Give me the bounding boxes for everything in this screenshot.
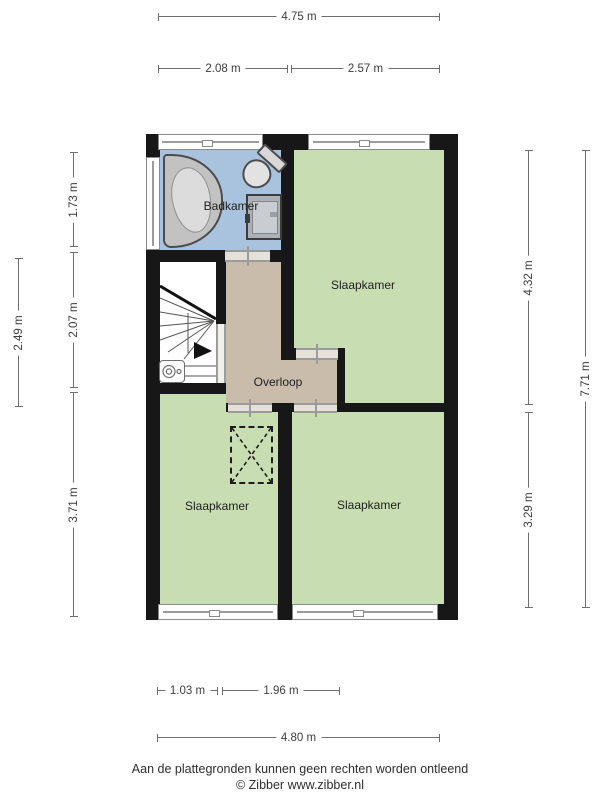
dashed-cross-marker: [230, 426, 273, 484]
dimension-top-right: 2.57 m: [291, 68, 440, 69]
room-label-bedroom-bottom-left: Slaapkamer: [185, 499, 249, 513]
dimension-label: 7.71 m: [580, 356, 592, 401]
dimension-top-total: 4.75 m: [158, 16, 440, 17]
dimension-right-top: 4.32 m: [528, 150, 529, 405]
dimension-left-mid: 2.07 m: [73, 252, 74, 388]
dimension-label: 2.49 m: [13, 310, 25, 355]
stairs-down-arrow: [194, 342, 212, 359]
dimension-left-top: 1.73 m: [73, 152, 74, 247]
dimension-label: 2.57 m: [343, 63, 388, 75]
dimension-right-bottom: 3.29 m: [528, 412, 529, 608]
room-label-bedroom-top: Slaapkamer: [331, 278, 395, 292]
dimension-label: 4.80 m: [276, 732, 321, 744]
shower-handle: [270, 212, 277, 217]
door-bedroom-top: [296, 348, 338, 360]
room-bedroom-top: [294, 150, 444, 348]
room-label-bathroom: Badkamer: [204, 199, 259, 213]
dimension-bottom-left: 1.03 m: [157, 690, 218, 691]
shower-knob: [245, 214, 250, 223]
room-label-landing: Overloop: [254, 375, 303, 389]
dimension-label: 3.29 m: [523, 487, 535, 532]
window-top-bathroom: [158, 134, 263, 150]
opening-stairs: [216, 324, 226, 383]
door-bedroom-bottom-left: [228, 403, 272, 413]
dimension-label: 1.73 m: [68, 177, 80, 222]
dimension-label: 1.96 m: [258, 685, 303, 697]
window-bottom-right-bedroom: [292, 604, 438, 620]
dimension-label: 3.71 m: [68, 482, 80, 527]
dimension-label: 2.08 m: [200, 63, 245, 75]
door-bedroom-bottom-right: [294, 403, 337, 413]
dimension-bottom-total: 4.80 m: [157, 737, 440, 738]
dimension-top-left: 2.08 m: [158, 68, 288, 69]
dimension-label: 2.07 m: [68, 297, 80, 342]
dimension-right-outer: 7.71 m: [585, 150, 586, 608]
dimension-label: 4.75 m: [276, 11, 321, 23]
dimension-left-outer: 2.49 m: [18, 258, 19, 407]
dimension-bottom-mid: 1.96 m: [222, 690, 340, 691]
floorplan-page: 4.75 m 2.08 m 2.57 m 2.49 m 1.73 m 2.07 …: [0, 0, 600, 800]
room-label-bedroom-bottom-right: Slaapkamer: [337, 498, 401, 512]
room-bedroom-top-lower-part: [345, 348, 444, 403]
disclaimer-text: Aan de plattegronden kunnen geen rechten…: [0, 762, 600, 776]
dimension-label: 1.03 m: [165, 685, 210, 697]
window-top-bedroom: [308, 134, 430, 150]
dimension-left-bottom: 3.71 m: [73, 392, 74, 617]
dimension-label: 4.32 m: [523, 255, 535, 300]
copyright-text: © Zibber www.zibber.nl: [0, 778, 600, 792]
door-bathroom: [225, 250, 270, 262]
window-left-bathroom: [146, 157, 160, 250]
window-bottom-left-bedroom: [158, 604, 278, 620]
boiler-icon: [159, 360, 185, 383]
